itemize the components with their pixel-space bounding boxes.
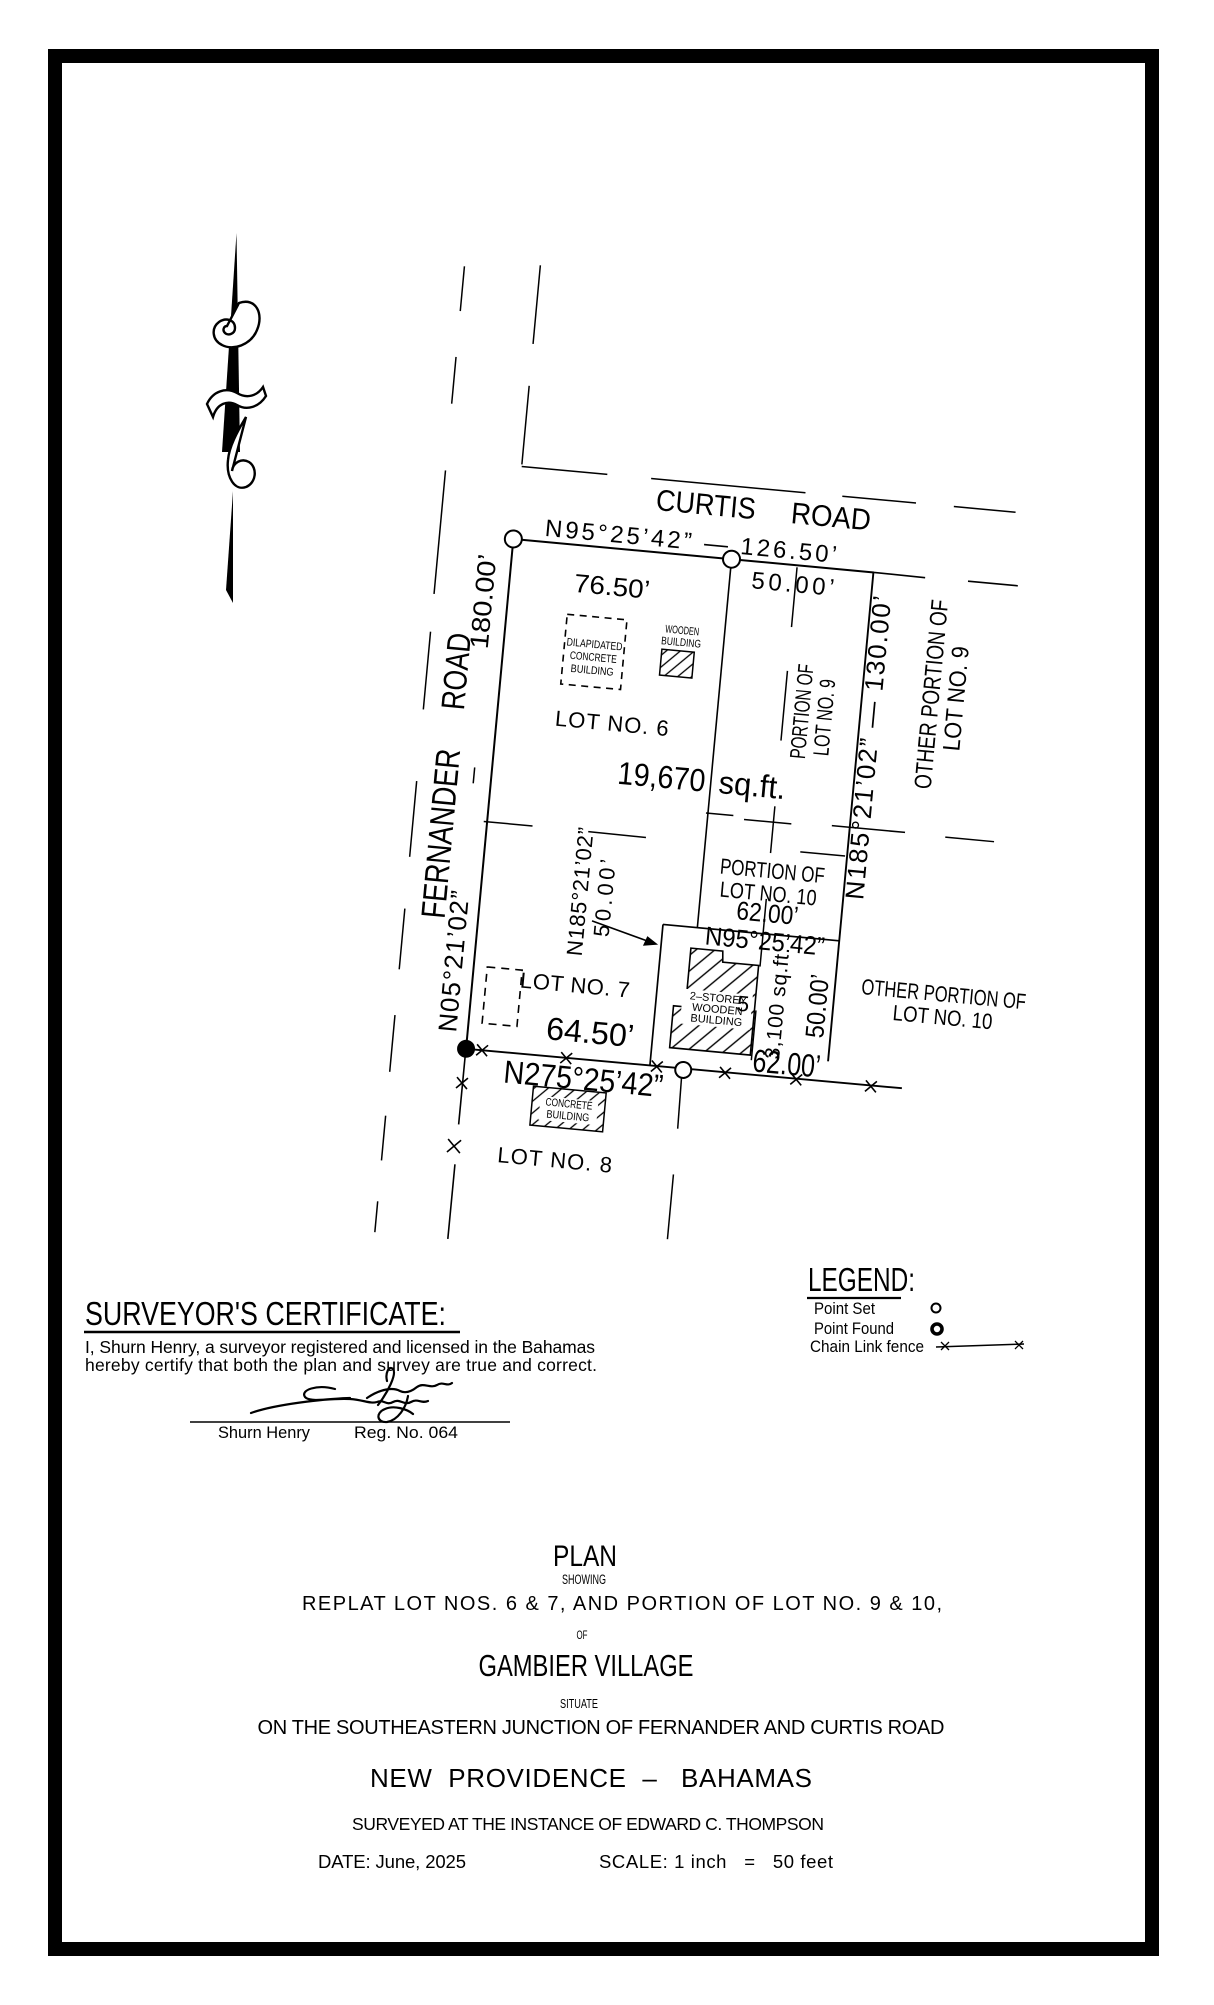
svg-text:Reg. No. 064: Reg. No. 064 [354, 1423, 458, 1442]
svg-text:SURVEYOR'S CERTIFICATE:: SURVEYOR'S CERTIFICATE: [85, 1295, 446, 1332]
svg-text:sq.ft.: sq.ft. [717, 764, 787, 806]
svg-text:ON THE SOUTHEASTERN JUNCTION O: ON THE SOUTHEASTERN JUNCTION OF FERNANDE… [258, 1717, 945, 1739]
svg-text:LEGEND:: LEGEND: [808, 1261, 915, 1298]
svg-text:DATE: June, 2025: DATE: June, 2025 [318, 1851, 466, 1872]
svg-text:50.00’: 50.00’ [799, 973, 835, 1039]
svg-text:REPLAT LOT NOS. 6 & 7, AND POR: REPLAT LOT NOS. 6 & 7, AND PORTION OF LO… [302, 1593, 942, 1615]
svg-text:SHOWING: SHOWING [562, 1572, 606, 1587]
svg-text:NEW PROVIDENCE – BAHAMAS: NEW PROVIDENCE – BAHAMAS [370, 1763, 812, 1793]
svg-text:SITUATE: SITUATE [560, 1697, 598, 1711]
svg-text:SURVEYED AT THE INSTANCE OF ED: SURVEYED AT THE INSTANCE OF EDWARD C. TH… [352, 1814, 824, 1834]
svg-text:SCALE: 1 inch = 50 feet: SCALE: 1 inch = 50 feet [599, 1851, 833, 1872]
svg-text:Chain Link fence: Chain Link fence [810, 1337, 924, 1356]
svg-text:OF: OF [577, 1628, 588, 1642]
svg-text:GAMBIER VILLAGE: GAMBIER VILLAGE [479, 1648, 694, 1683]
svg-text:5: 5 [736, 991, 751, 1017]
svg-text:Point Set: Point Set [814, 1299, 875, 1318]
svg-text:62.00’: 62.00’ [751, 1042, 822, 1084]
svg-text:PLAN: PLAN [553, 1540, 617, 1573]
svg-text:Point Found: Point Found [814, 1319, 894, 1338]
svg-text:I, Shurn Henry, a surveyor reg: I, Shurn Henry, a surveyor registered an… [85, 1337, 595, 1357]
svg-text:Shurn Henry: Shurn Henry [218, 1423, 310, 1442]
svg-text:hereby certify that both the p: hereby certify that both the plan and su… [85, 1355, 597, 1375]
